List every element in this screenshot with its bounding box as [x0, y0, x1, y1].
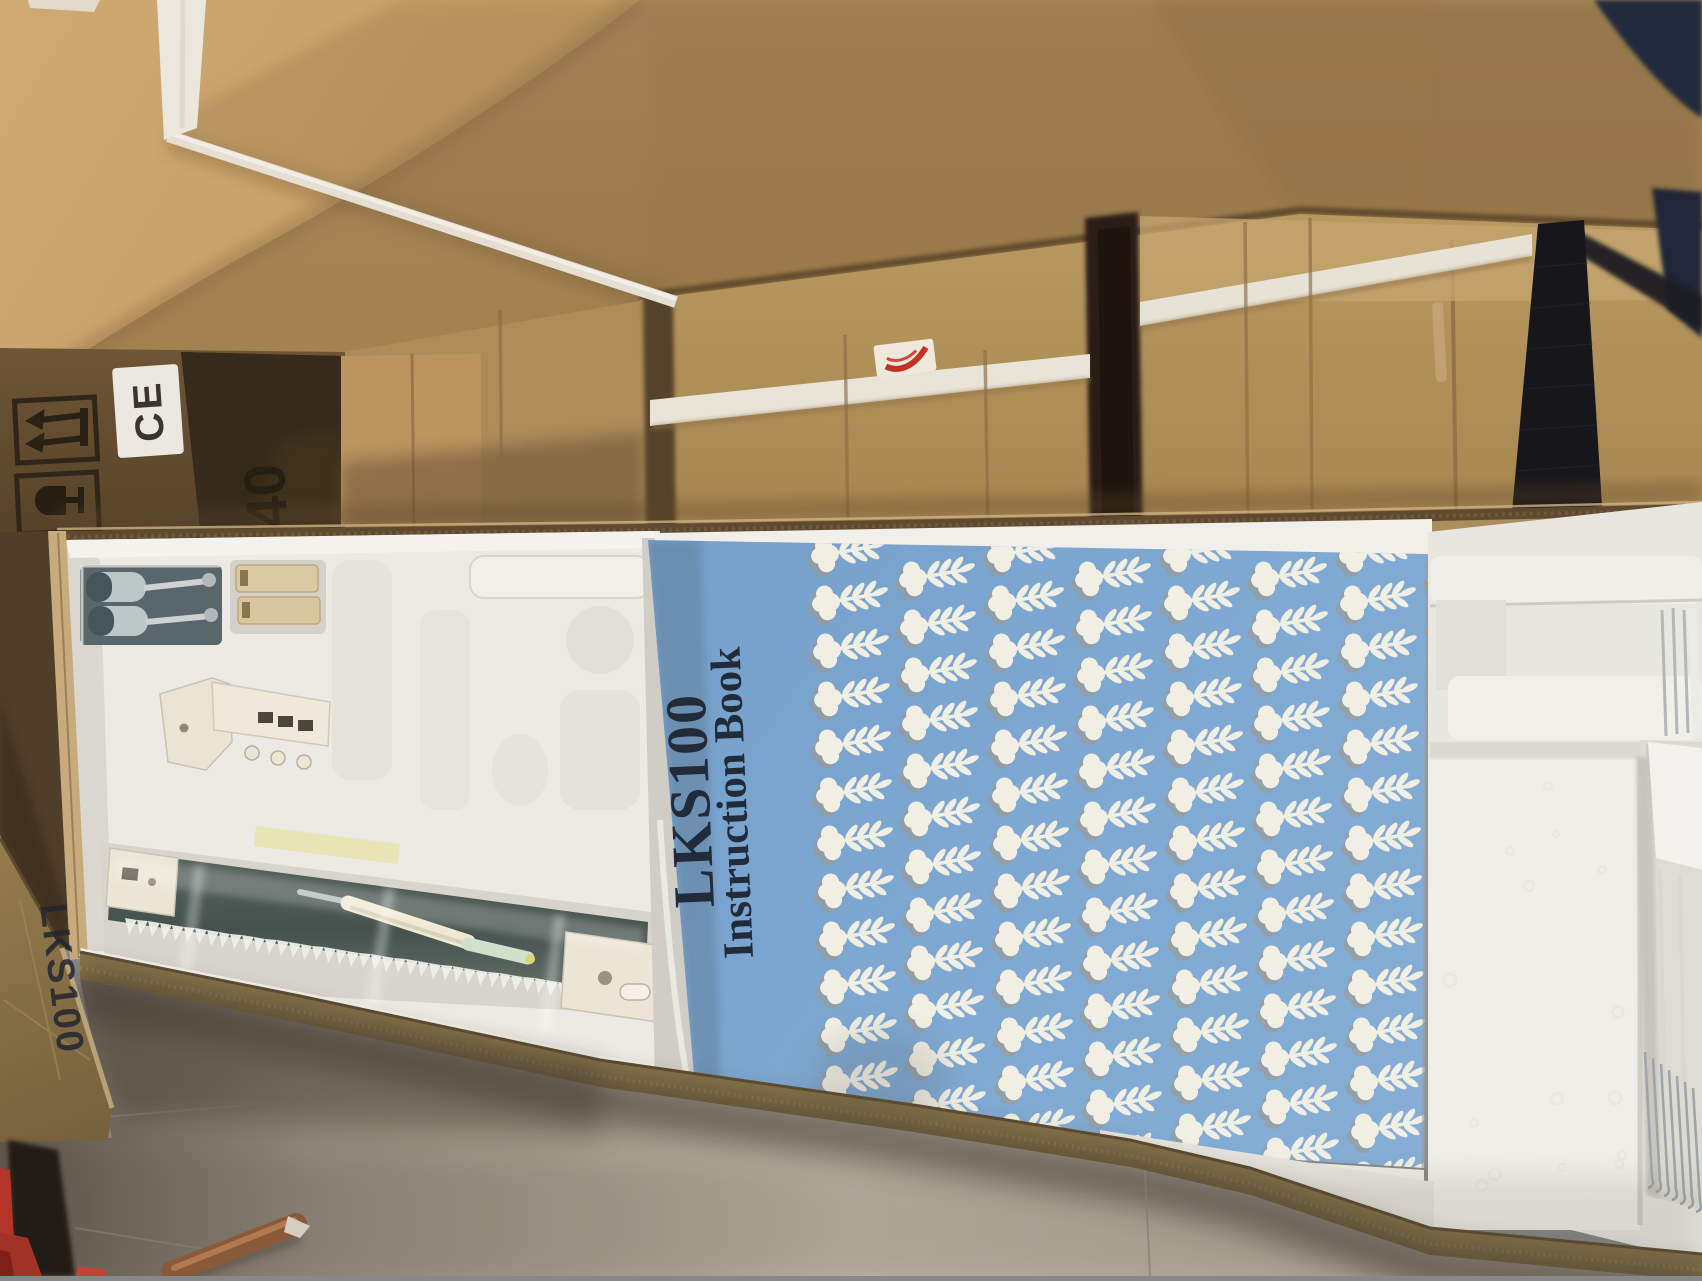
svg-text:CE: CE: [125, 379, 173, 443]
